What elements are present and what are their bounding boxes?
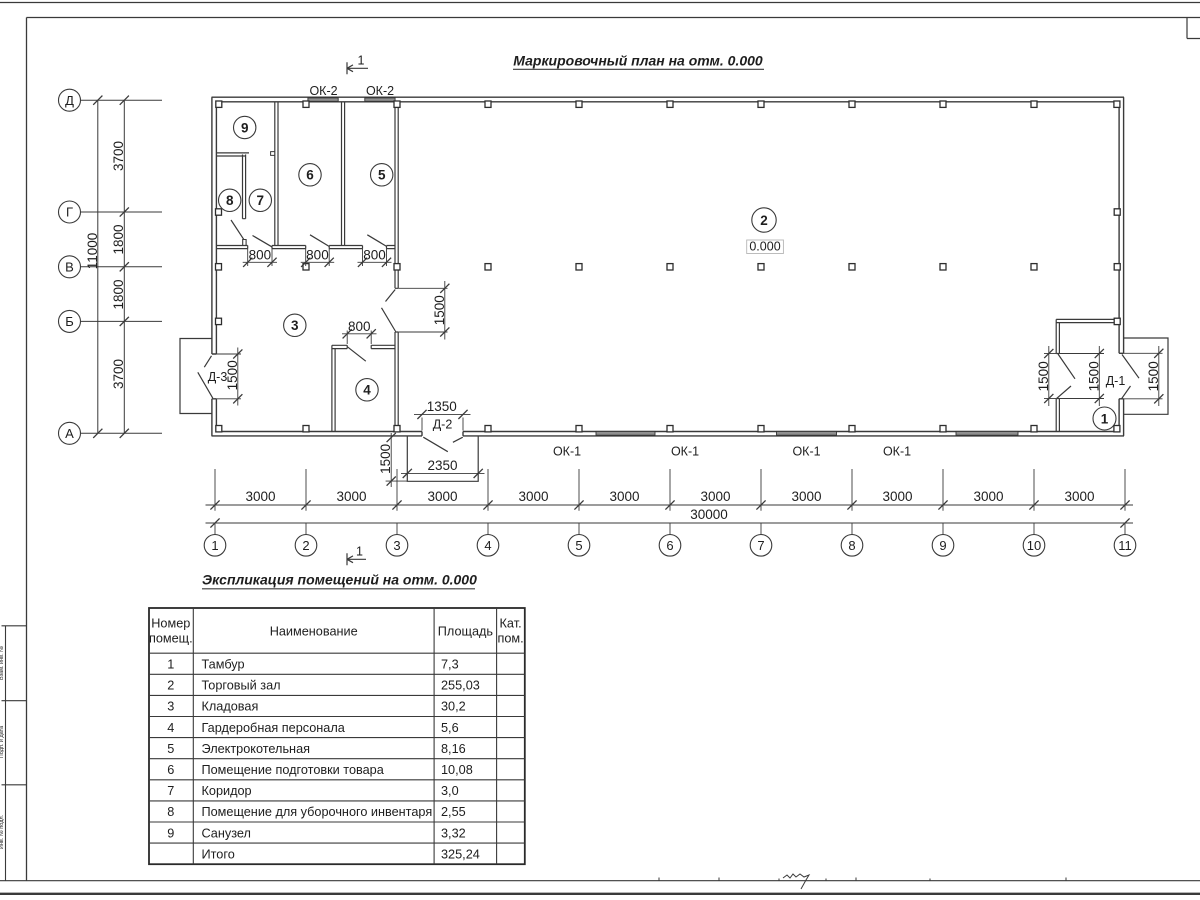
svg-text:3,32: 3,32 — [441, 826, 466, 840]
svg-text:3000: 3000 — [336, 489, 366, 504]
svg-text:3000: 3000 — [427, 489, 457, 504]
svg-text:3000: 3000 — [700, 489, 730, 504]
svg-text:ОК-1: ОК-1 — [553, 445, 581, 459]
svg-text:1500: 1500 — [1146, 361, 1161, 391]
svg-text:8: 8 — [226, 193, 234, 208]
svg-text:9: 9 — [241, 120, 249, 135]
svg-text:0.000: 0.000 — [749, 240, 780, 254]
svg-text:2,55: 2,55 — [441, 805, 466, 819]
svg-text:3700: 3700 — [111, 141, 126, 171]
svg-text:Торговый зал: Торговый зал — [202, 679, 281, 693]
svg-text:1500: 1500 — [225, 360, 240, 390]
svg-text:Гардеробная персонала: Гардеробная персонала — [202, 721, 346, 735]
svg-text:Помещение подготовки товара: Помещение подготовки товара — [202, 763, 385, 777]
svg-text:Помещение для уборочного инвен: Помещение для уборочного инвентаря — [202, 805, 433, 819]
svg-text:11000: 11000 — [85, 233, 100, 270]
svg-text:6: 6 — [666, 538, 673, 553]
svg-text:3000: 3000 — [1064, 489, 1094, 504]
svg-text:6: 6 — [306, 168, 314, 183]
svg-text:2: 2 — [760, 213, 768, 228]
svg-text:3: 3 — [393, 538, 400, 553]
svg-text:5: 5 — [378, 168, 386, 183]
svg-text:Инв. № подл.: Инв. № подл. — [0, 814, 5, 849]
svg-text:4: 4 — [484, 538, 491, 553]
svg-text:6: 6 — [167, 763, 174, 777]
svg-text:7,3: 7,3 — [441, 658, 459, 672]
svg-text:9: 9 — [939, 538, 946, 553]
svg-text:Взам. инв. №: Взам. инв. № — [0, 646, 5, 680]
svg-text:1350: 1350 — [427, 399, 457, 414]
svg-text:1500: 1500 — [1086, 361, 1101, 391]
svg-text:Кладовая: Кладовая — [202, 700, 259, 714]
svg-text:Д-2: Д-2 — [433, 418, 453, 432]
svg-text:ОК-1: ОК-1 — [792, 445, 820, 459]
svg-text:3000: 3000 — [973, 489, 1003, 504]
svg-text:3000: 3000 — [245, 489, 275, 504]
svg-text:7: 7 — [257, 193, 265, 208]
svg-text:3: 3 — [291, 318, 299, 333]
svg-text:Д: Д — [65, 93, 74, 108]
svg-text:Коридор: Коридор — [202, 784, 252, 798]
svg-text:Кат.: Кат. — [500, 617, 522, 631]
svg-text:Санузел: Санузел — [202, 826, 251, 840]
svg-text:10: 10 — [1027, 538, 1041, 553]
svg-text:325,24: 325,24 — [441, 847, 480, 861]
svg-text:11: 11 — [1118, 538, 1132, 553]
svg-text:4: 4 — [167, 721, 174, 735]
svg-text:30000: 30000 — [690, 507, 728, 522]
svg-text:1500: 1500 — [1036, 361, 1051, 391]
svg-text:А: А — [65, 426, 74, 441]
svg-text:2350: 2350 — [427, 458, 457, 473]
svg-text:5: 5 — [575, 538, 582, 553]
svg-text:3000: 3000 — [882, 489, 912, 504]
svg-text:Б: Б — [65, 314, 74, 329]
svg-text:Экспликация помещений на отм.: Экспликация помещений на отм. 0.000 — [202, 572, 477, 588]
svg-text:ОК-1: ОК-1 — [671, 445, 699, 459]
svg-text:800: 800 — [348, 319, 371, 334]
svg-text:255,03: 255,03 — [441, 679, 480, 693]
svg-text:1800: 1800 — [111, 279, 126, 309]
svg-text:2: 2 — [167, 679, 174, 693]
svg-text:7: 7 — [167, 784, 174, 798]
svg-text:Подп. и дата: Подп. и дата — [0, 725, 5, 758]
svg-text:Итого: Итого — [202, 847, 235, 861]
svg-text:8: 8 — [167, 805, 174, 819]
svg-text:800: 800 — [249, 248, 272, 263]
svg-text:5,6: 5,6 — [441, 721, 459, 735]
svg-text:3000: 3000 — [791, 489, 821, 504]
svg-text:В: В — [65, 259, 74, 274]
svg-text:Маркировочный план на отм. 0.0: Маркировочный план на отм. 0.000 — [513, 53, 763, 69]
svg-text:800: 800 — [306, 248, 329, 263]
svg-text:8,16: 8,16 — [441, 742, 466, 756]
svg-text:ОК-2: ОК-2 — [309, 84, 337, 98]
svg-text:Тамбур: Тамбур — [202, 658, 245, 672]
svg-text:800: 800 — [363, 248, 386, 263]
svg-text:3,0: 3,0 — [441, 784, 459, 798]
svg-text:Площадь: Площадь — [438, 625, 494, 639]
svg-text:1: 1 — [211, 538, 218, 553]
svg-text:3: 3 — [167, 700, 174, 714]
svg-text:1800: 1800 — [111, 224, 126, 254]
svg-text:ОК-2: ОК-2 — [366, 84, 394, 98]
svg-text:3700: 3700 — [111, 359, 126, 389]
svg-text:Д-1: Д-1 — [1106, 374, 1126, 388]
svg-text:Электрокотельная: Электрокотельная — [202, 742, 311, 756]
svg-text:5: 5 — [167, 742, 174, 756]
svg-text:1: 1 — [358, 54, 365, 68]
svg-text:1500: 1500 — [378, 444, 393, 474]
svg-text:пом.: пом. — [498, 632, 524, 646]
svg-text:4: 4 — [363, 383, 371, 398]
svg-text:ОК-1: ОК-1 — [883, 445, 911, 459]
svg-text:1: 1 — [167, 658, 174, 672]
svg-text:Номер: Номер — [151, 617, 190, 631]
svg-text:1: 1 — [1101, 411, 1109, 426]
svg-text:1500: 1500 — [432, 295, 447, 325]
svg-text:30,2: 30,2 — [441, 700, 466, 714]
svg-text:Г: Г — [66, 205, 73, 220]
svg-text:8: 8 — [848, 538, 855, 553]
svg-text:7: 7 — [757, 538, 764, 553]
svg-text:10,08: 10,08 — [441, 763, 473, 777]
svg-text:3000: 3000 — [609, 489, 639, 504]
svg-text:1: 1 — [356, 545, 363, 559]
svg-text:Наименование: Наименование — [270, 625, 358, 639]
svg-text:помещ.: помещ. — [149, 632, 193, 646]
svg-text:2: 2 — [302, 538, 309, 553]
svg-text:3000: 3000 — [518, 489, 548, 504]
svg-text:9: 9 — [167, 826, 174, 840]
